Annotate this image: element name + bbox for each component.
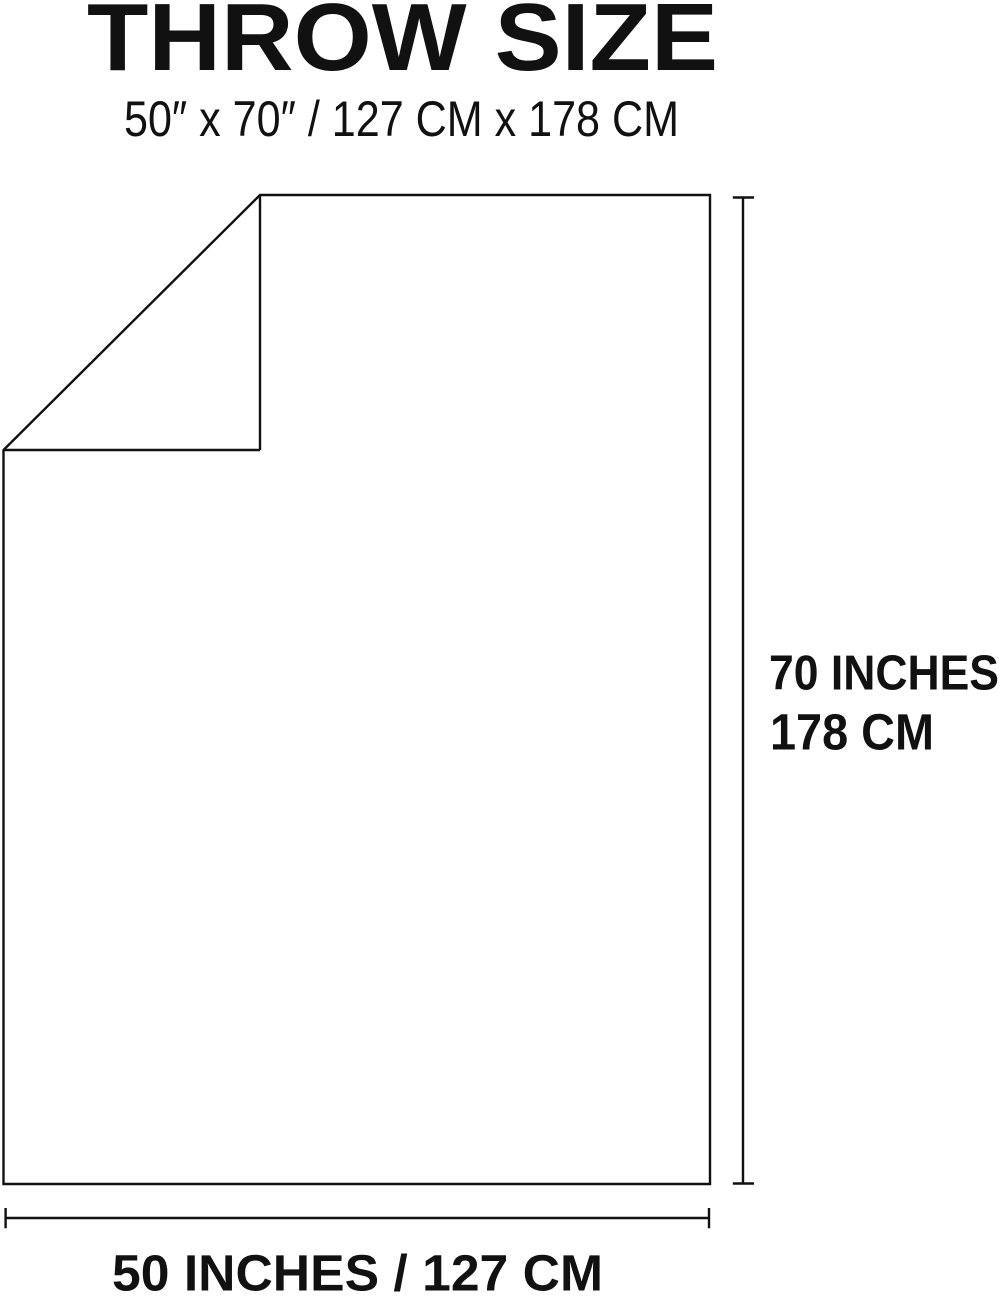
svg-text:50 INCHES / 127 CM: 50 INCHES / 127 CM — [112, 1245, 603, 1296]
svg-text:THROW SIZE: THROW SIZE — [87, 0, 718, 91]
svg-text:70 INCHES: 70 INCHES — [769, 647, 999, 701]
svg-text:178 CM: 178 CM — [770, 704, 934, 761]
svg-text:50″ x 70″ / 127 CM x 178 CM: 50″ x 70″ / 127 CM x 178 CM — [124, 91, 679, 147]
